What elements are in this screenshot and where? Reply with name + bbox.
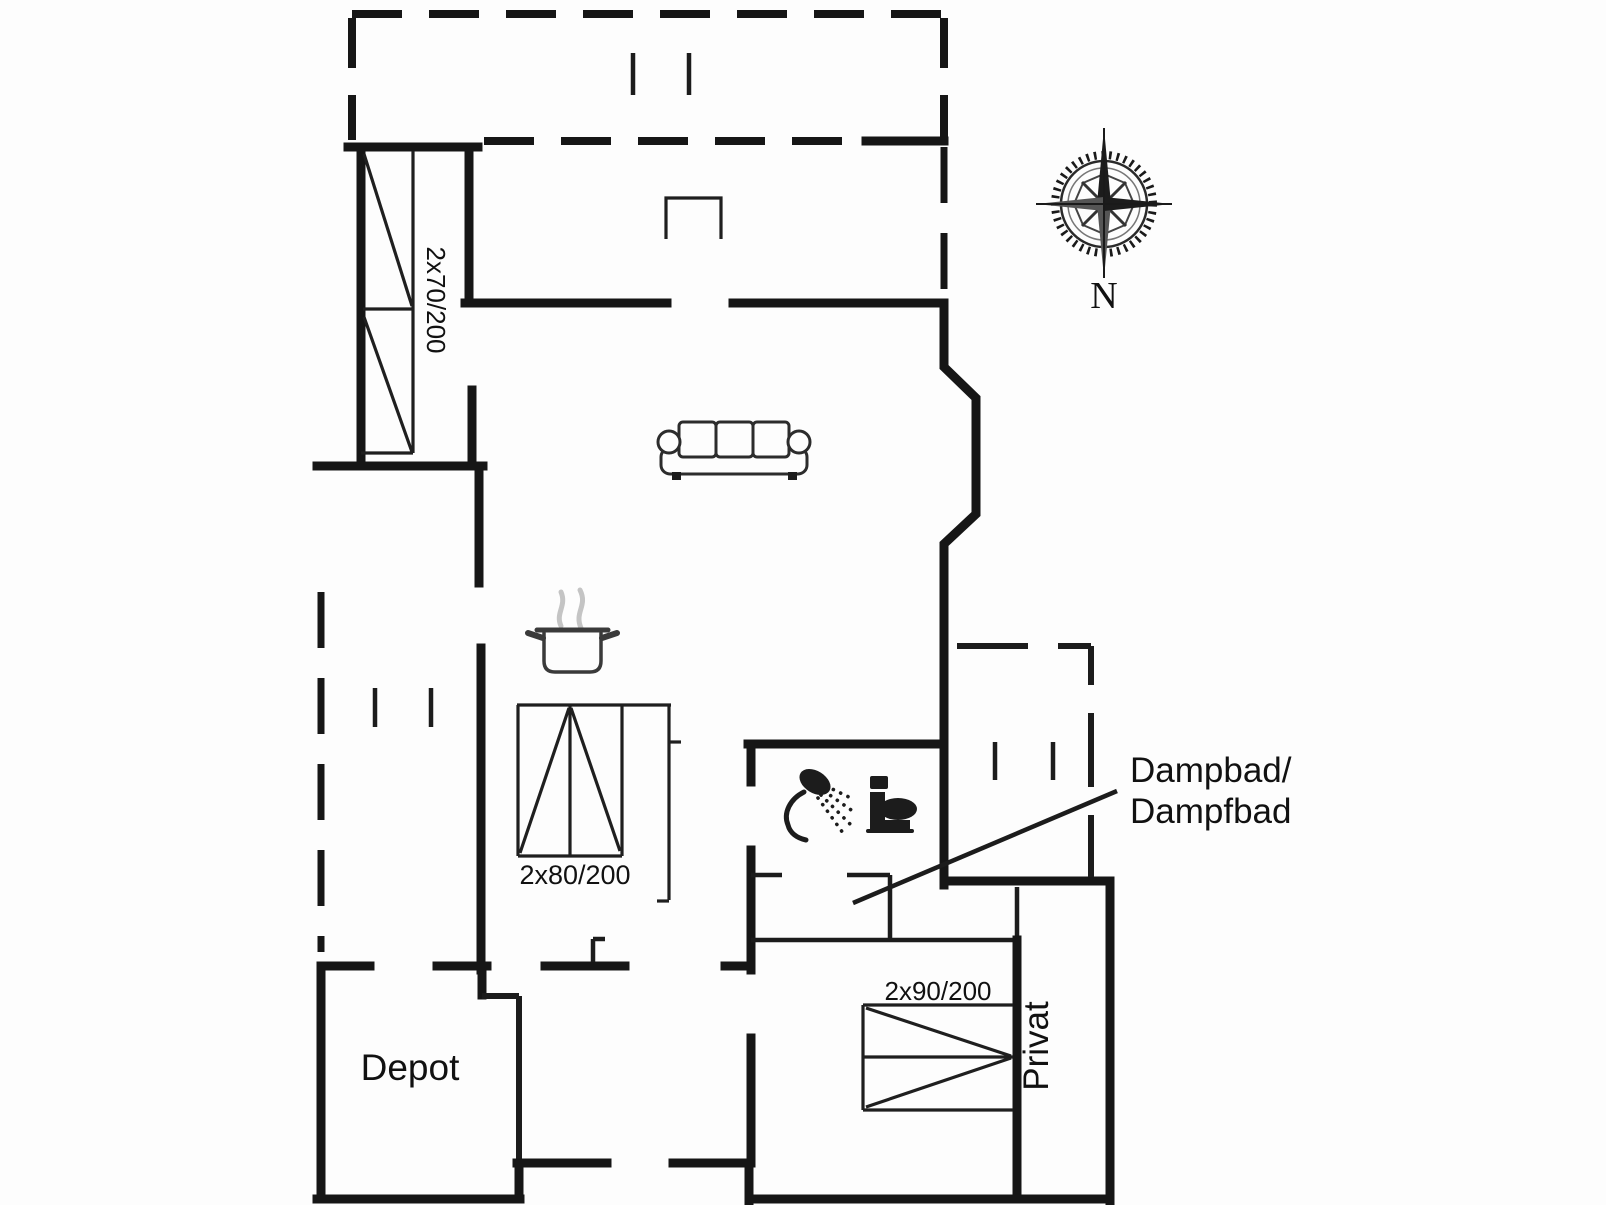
bed-small-size-label: 2x80/200 <box>519 860 630 890</box>
window-size-label: 2x70/200 <box>421 247 451 354</box>
shower-icon <box>786 764 854 840</box>
wall-livingroom-north <box>465 198 944 303</box>
compass-north-label: N <box>1090 275 1117 317</box>
chimney-niche-icon <box>666 198 721 239</box>
floor-plan-drawing: N 2x70/200 2x80/200 2x90/200 Depot Priva… <box>0 0 1606 1205</box>
sofa-icon <box>658 422 810 480</box>
annotation-line-2: Dampfbad <box>1130 792 1291 831</box>
carport-outline-left <box>321 592 431 952</box>
compass-rose-icon: N <box>1036 128 1172 317</box>
toilet-icon <box>866 776 917 833</box>
depot-room-label: Depot <box>361 1047 460 1088</box>
bed-large-size-label: 2x90/200 <box>885 976 992 1006</box>
cooking-pot-icon <box>528 590 617 672</box>
bed-2x90-200 <box>863 1005 1013 1110</box>
annotation-line-1: Dampbad/ <box>1130 751 1292 790</box>
floor-plan-page: N 2x70/200 2x80/200 2x90/200 Depot Priva… <box>0 0 1606 1205</box>
window-2x70-200 <box>348 147 478 462</box>
steam-bath-annotation: Dampbad/ Dampfbad <box>1130 751 1292 831</box>
dashed-room-east <box>957 646 1091 877</box>
wall-west-interior <box>317 390 483 970</box>
privat-room-label: Privat <box>1017 1001 1056 1091</box>
wall-south-band <box>321 939 751 966</box>
terrace-outline-top <box>352 14 944 141</box>
